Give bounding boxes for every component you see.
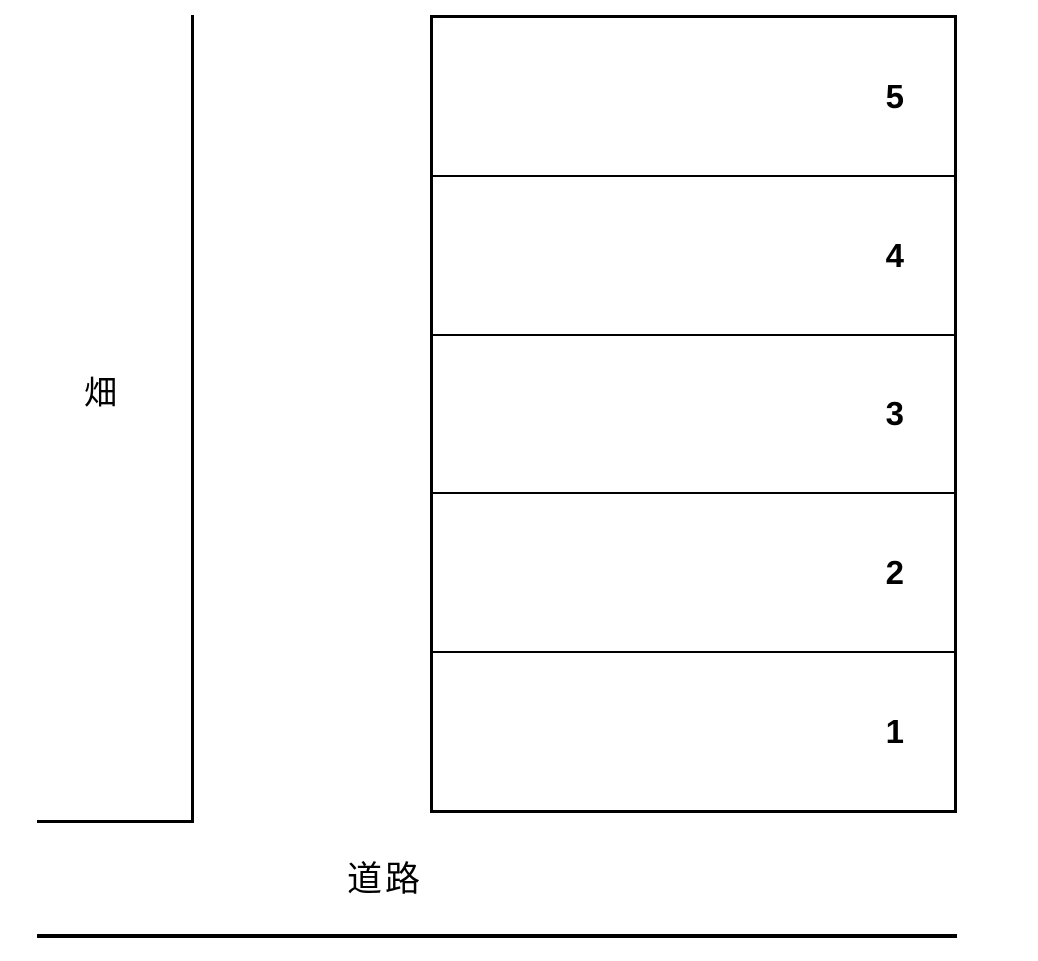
parking-lot-block: 5 4 3 2 1 xyxy=(430,15,957,813)
parking-space-1: 1 xyxy=(433,653,954,810)
parking-space-5: 5 xyxy=(433,18,954,177)
parking-space-number: 4 xyxy=(886,239,904,272)
field-label: 畑 xyxy=(84,366,118,414)
road-label: 道路 xyxy=(347,851,423,902)
parking-layout-diagram: 畑 5 4 3 2 1 道路 xyxy=(0,0,1038,961)
parking-space-2: 2 xyxy=(433,494,954,653)
field-boundary-horizontal-line xyxy=(37,820,194,823)
parking-space-number: 5 xyxy=(886,80,904,113)
field-boundary-vertical-line xyxy=(191,15,194,823)
parking-space-number: 3 xyxy=(886,397,904,430)
parking-space-4: 4 xyxy=(433,177,954,336)
parking-space-3: 3 xyxy=(433,336,954,495)
parking-space-number: 2 xyxy=(886,556,904,589)
parking-space-number: 1 xyxy=(886,715,904,748)
road-line xyxy=(37,934,957,938)
